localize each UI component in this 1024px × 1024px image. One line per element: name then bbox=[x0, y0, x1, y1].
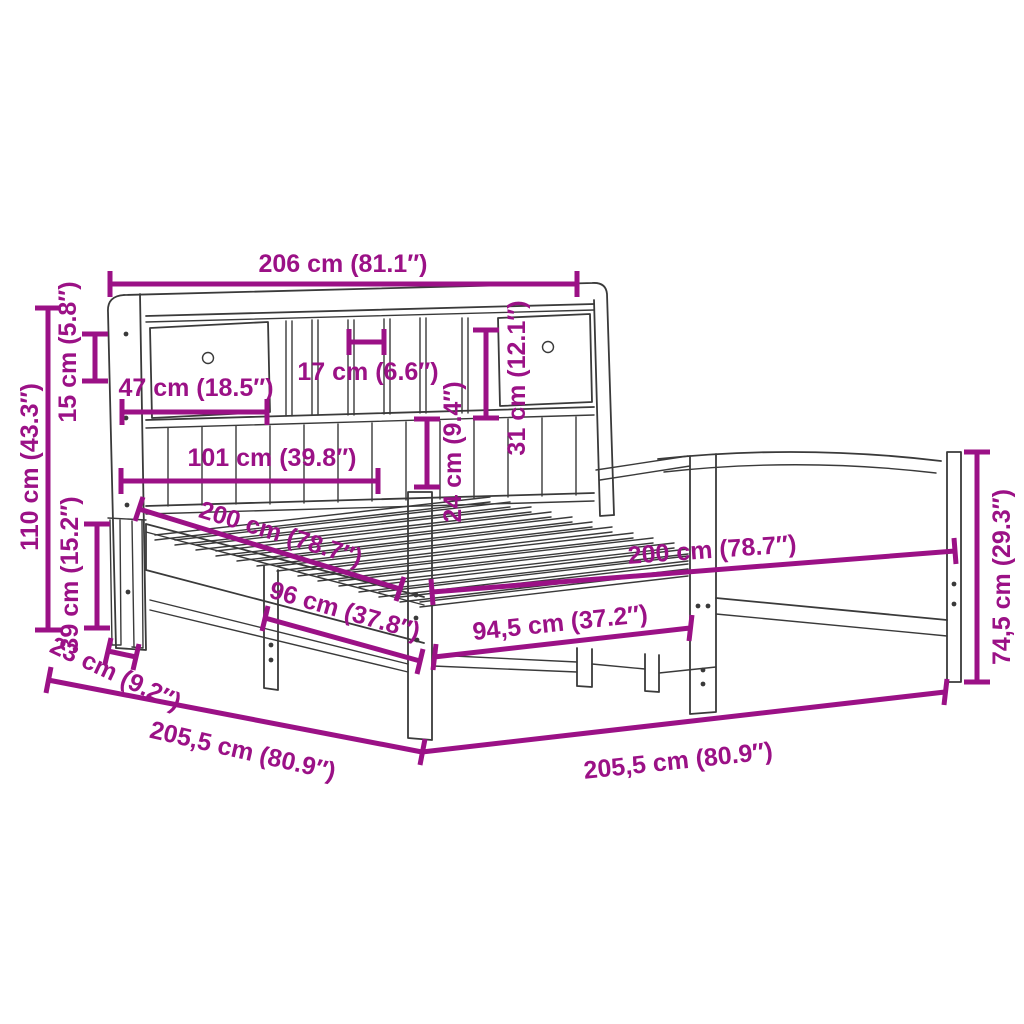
dim-clearance-under-bed: 39 cm (15.2″) bbox=[56, 496, 110, 651]
footboard-bottom-rail bbox=[716, 598, 947, 636]
dim-label-headboard-height: 110 cm (43.3″) bbox=[16, 383, 44, 551]
footboard-arch bbox=[658, 452, 941, 461]
dim-label-drawer-width: 47 cm (18.5″) bbox=[118, 374, 273, 402]
dim-label-footboard-height: 74,5 cm (29.3″) bbox=[988, 489, 1016, 665]
dim-label-frame-length-front: 205,5 cm (80.9″) bbox=[582, 737, 774, 785]
dim-lower-shelf-height: 24 cm (9.4″) bbox=[414, 381, 467, 522]
dim-label-top-section-height: 15 cm (5.8″) bbox=[54, 281, 82, 422]
dim-label-right-compartment-height: 31 cm (12.1″) bbox=[503, 300, 531, 455]
dimension-annotations: 206 cm (81.1″) 110 cm (43.3″) 15 cm (5.8… bbox=[16, 250, 1016, 786]
product-dimension-diagram: 206 cm (81.1″) 110 cm (43.3″) 15 cm (5.8… bbox=[0, 0, 1024, 1024]
dim-label-frame-length-side: 205,5 cm (80.9″) bbox=[147, 716, 338, 786]
footboard bbox=[658, 452, 961, 714]
dim-label-headboard-width: 206 cm (81.1″) bbox=[258, 250, 427, 278]
dim-frame-length-side: 205,5 cm (80.9″) bbox=[46, 667, 425, 786]
bookcase-headboard bbox=[108, 283, 614, 650]
dim-footboard-height: 74,5 cm (29.3″) bbox=[964, 452, 1016, 682]
dim-footboard-inner-width: 94,5 cm (37.2″) bbox=[433, 600, 692, 670]
dim-frame-length-front: 205,5 cm (80.9″) bbox=[422, 679, 947, 785]
dim-right-compartment-height: 31 cm (12.1″) bbox=[473, 300, 531, 455]
headboard-left-panel bbox=[108, 294, 146, 650]
headboard-left-drawer bbox=[150, 322, 270, 418]
diagram-canvas: 206 cm (81.1″) 110 cm (43.3″) 15 cm (5.8… bbox=[0, 0, 1024, 1024]
dim-shelf-width: 101 cm (39.8″) bbox=[121, 444, 378, 494]
footboard-right-post bbox=[947, 452, 961, 682]
dim-label-footboard-inner-width: 94,5 cm (37.2″) bbox=[471, 600, 649, 646]
far-rail bbox=[596, 456, 690, 480]
dim-label-lower-shelf-height: 24 cm (9.4″) bbox=[439, 381, 467, 522]
dim-label-clearance-under-bed: 39 cm (15.2″) bbox=[56, 496, 84, 651]
dim-label-shelf-width: 101 cm (39.8″) bbox=[187, 444, 356, 472]
dim-top-section-height: 15 cm (5.8″) bbox=[54, 281, 108, 422]
dim-mattress-width: 200 cm (78.7″) bbox=[431, 530, 956, 605]
dim-label-compartment-width: 17 cm (6.6″) bbox=[297, 358, 438, 386]
footboard-left-leg bbox=[690, 454, 716, 714]
